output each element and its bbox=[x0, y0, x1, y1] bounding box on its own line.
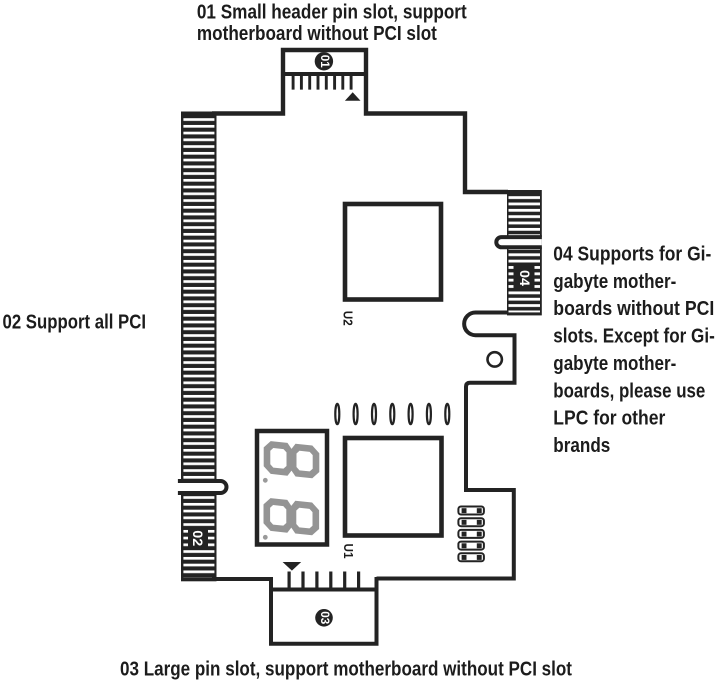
svg-text:03 Large pin slot, support mot: 03 Large pin slot, support motherboard w… bbox=[120, 657, 572, 680]
svg-text:U1: U1 bbox=[341, 544, 356, 559]
svg-text:boards without PCI: boards without PCI bbox=[553, 297, 714, 320]
svg-text:gabyte mother-: gabyte mother- bbox=[553, 352, 676, 375]
svg-text:02: 02 bbox=[190, 530, 205, 546]
svg-text:04 Supports for Gi-: 04 Supports for Gi- bbox=[553, 243, 711, 266]
svg-text:brands: brands bbox=[553, 434, 610, 457]
svg-text:U2: U2 bbox=[340, 311, 355, 326]
svg-text:04: 04 bbox=[517, 270, 532, 287]
svg-text:boards, please use: boards, please use bbox=[553, 379, 705, 402]
svg-text:gabyte mother-: gabyte mother- bbox=[553, 270, 676, 293]
svg-text:01: 01 bbox=[318, 55, 330, 69]
svg-text:02 Support all PCI: 02 Support all PCI bbox=[3, 311, 147, 334]
svg-text:01 Small header pin slot, supp: 01 Small header pin slot, support bbox=[197, 2, 467, 24]
svg-text:03: 03 bbox=[318, 611, 330, 624]
svg-text:motherboard without PCI slot: motherboard without PCI slot bbox=[197, 23, 437, 45]
svg-text:slots. Except for Gi-: slots. Except for Gi- bbox=[553, 325, 715, 348]
svg-text:LPC for other: LPC for other bbox=[553, 407, 665, 430]
